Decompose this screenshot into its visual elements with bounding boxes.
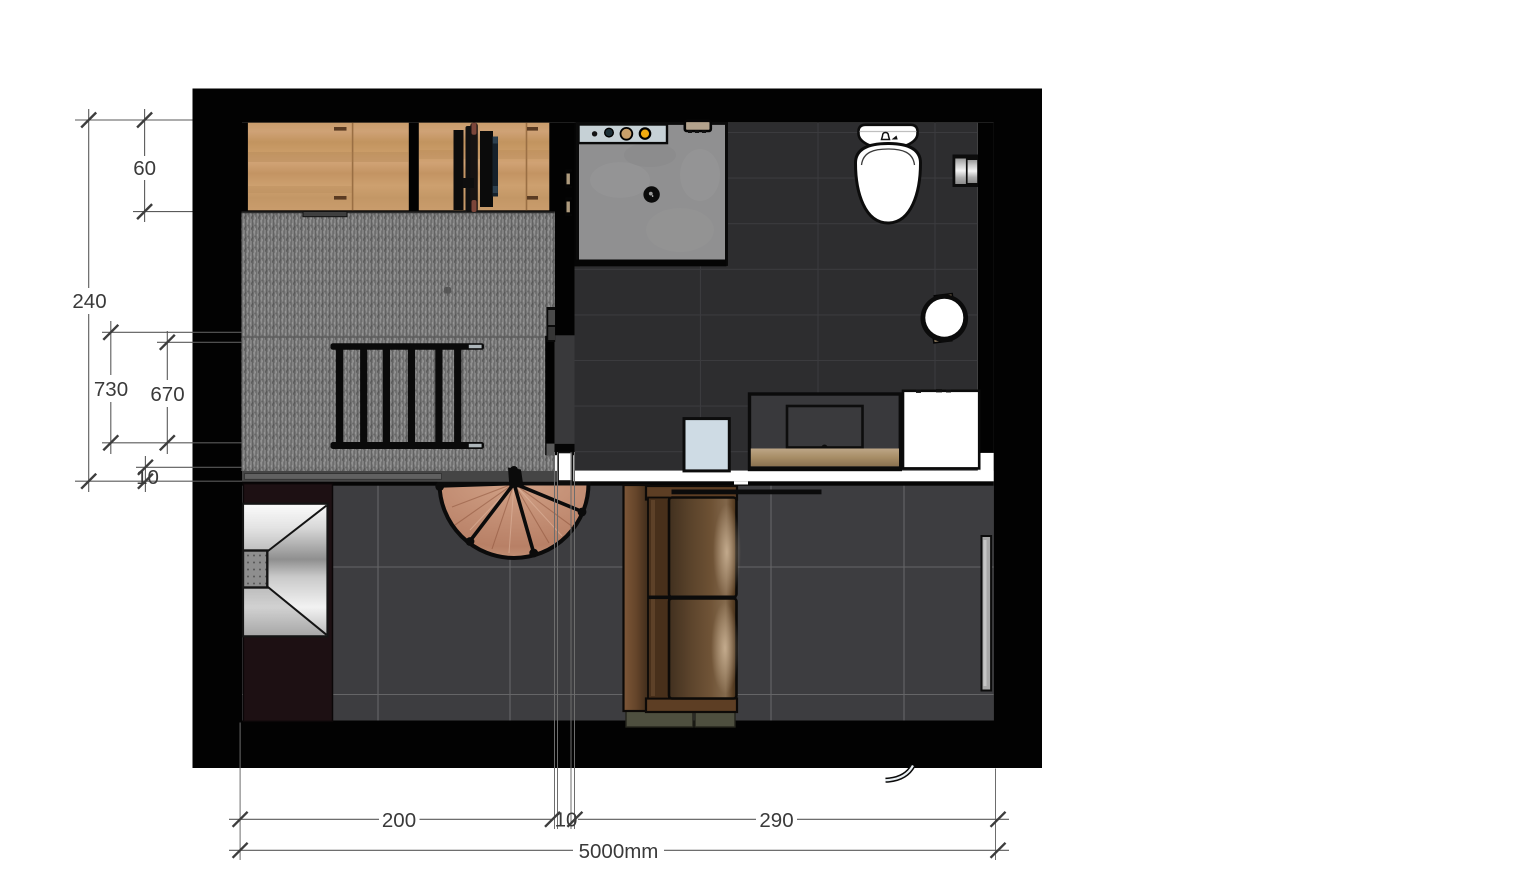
svg-text:200: 200: [382, 809, 416, 832]
svg-text:60: 60: [133, 157, 156, 180]
svg-text:240: 240: [72, 290, 106, 313]
svg-text:730: 730: [94, 378, 128, 401]
svg-text:10: 10: [555, 809, 578, 832]
svg-text:10: 10: [136, 466, 159, 489]
svg-text:290: 290: [759, 809, 793, 832]
svg-text:670: 670: [150, 383, 184, 406]
svg-text:5000mm: 5000mm: [579, 840, 659, 863]
